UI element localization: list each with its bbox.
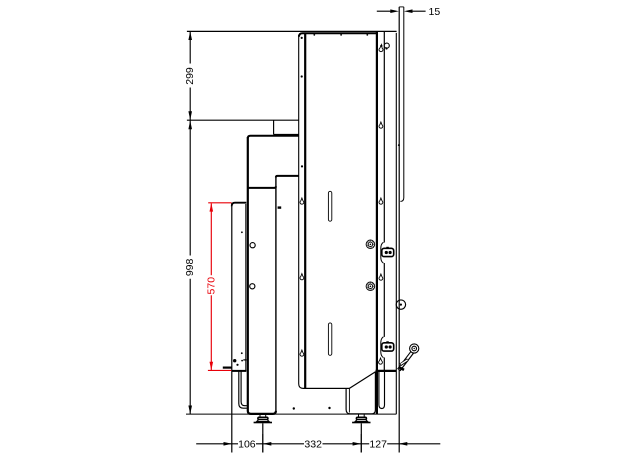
svg-text:15: 15 bbox=[429, 6, 441, 18]
svg-text:127: 127 bbox=[369, 439, 387, 451]
svg-text:332: 332 bbox=[304, 439, 322, 451]
svg-text:570: 570 bbox=[205, 277, 217, 295]
svg-text:299: 299 bbox=[184, 67, 196, 85]
svg-text:106: 106 bbox=[238, 439, 256, 451]
svg-text:998: 998 bbox=[184, 258, 196, 276]
